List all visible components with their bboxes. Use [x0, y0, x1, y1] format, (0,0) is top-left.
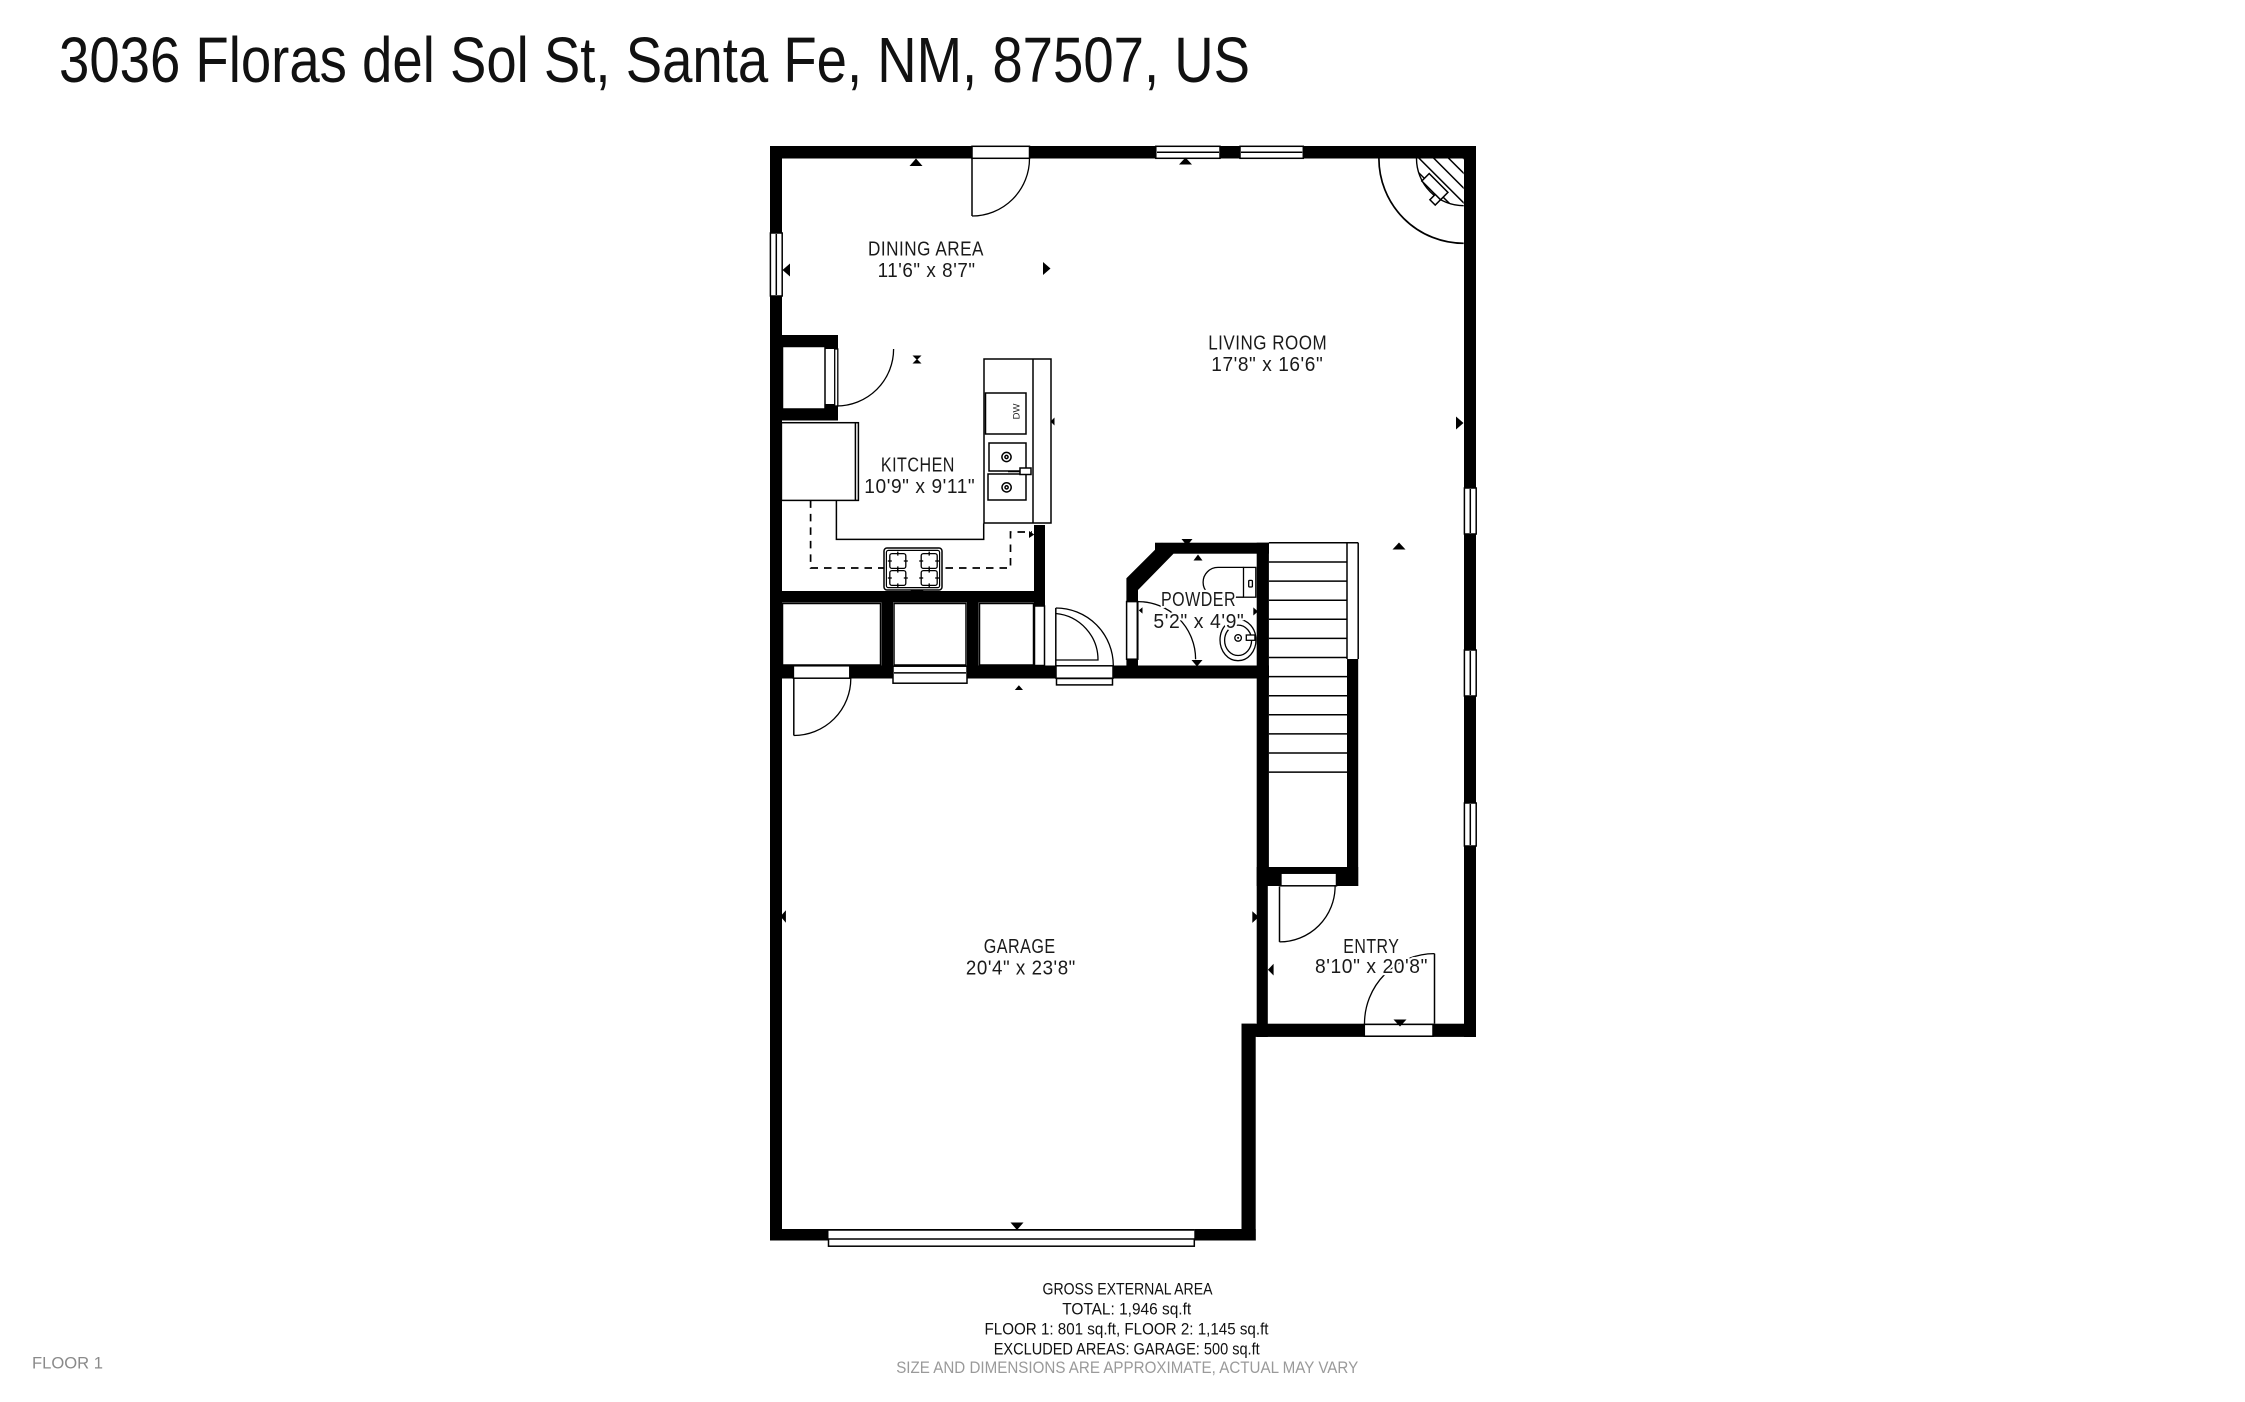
svg-text:20'4" x 23'8": 20'4" x 23'8": [966, 957, 1076, 979]
svg-text:17'8" x 16'6": 17'8" x 16'6": [1211, 354, 1323, 376]
svg-text:11'6" x 8'7": 11'6" x 8'7": [878, 260, 976, 282]
svg-text:ENTRY: ENTRY: [1343, 936, 1399, 958]
svg-text:LIVING ROOM: LIVING ROOM: [1208, 333, 1327, 355]
svg-text:8'10" x 20'8": 8'10" x 20'8": [1315, 956, 1428, 978]
svg-text:SIZE AND DIMENSIONS ARE APPROX: SIZE AND DIMENSIONS ARE APPROXIMATE, ACT…: [896, 1358, 1358, 1377]
svg-text:KITCHEN: KITCHEN: [881, 454, 955, 476]
svg-text:5'2" x 4'9": 5'2" x 4'9": [1153, 611, 1244, 633]
svg-text:TOTAL: 1,946 sq.ft: TOTAL: 1,946 sq.ft: [1062, 1300, 1191, 1319]
svg-text:DINING AREA: DINING AREA: [868, 238, 984, 260]
svg-text:3036 Floras del Sol St, Santa: 3036 Floras del Sol St, Santa Fe, NM, 87…: [59, 24, 1250, 96]
svg-text:EXCLUDED AREAS: GARAGE: 500 sq: EXCLUDED AREAS: GARAGE: 500 sq.ft: [994, 1340, 1260, 1359]
svg-text:FLOOR 1: FLOOR 1: [32, 1354, 103, 1373]
svg-text:GARAGE: GARAGE: [984, 936, 1056, 958]
svg-text:10'9" x 9'11": 10'9" x 9'11": [864, 476, 975, 498]
svg-text:POWDER: POWDER: [1161, 589, 1236, 611]
svg-text:DW: DW: [1012, 404, 1023, 420]
svg-text:GROSS EXTERNAL AREA: GROSS EXTERNAL AREA: [1043, 1280, 1214, 1299]
svg-text:FLOOR 1: 801 sq.ft, FLOOR 2: 1: FLOOR 1: 801 sq.ft, FLOOR 2: 1,145 sq.ft: [985, 1320, 1269, 1339]
